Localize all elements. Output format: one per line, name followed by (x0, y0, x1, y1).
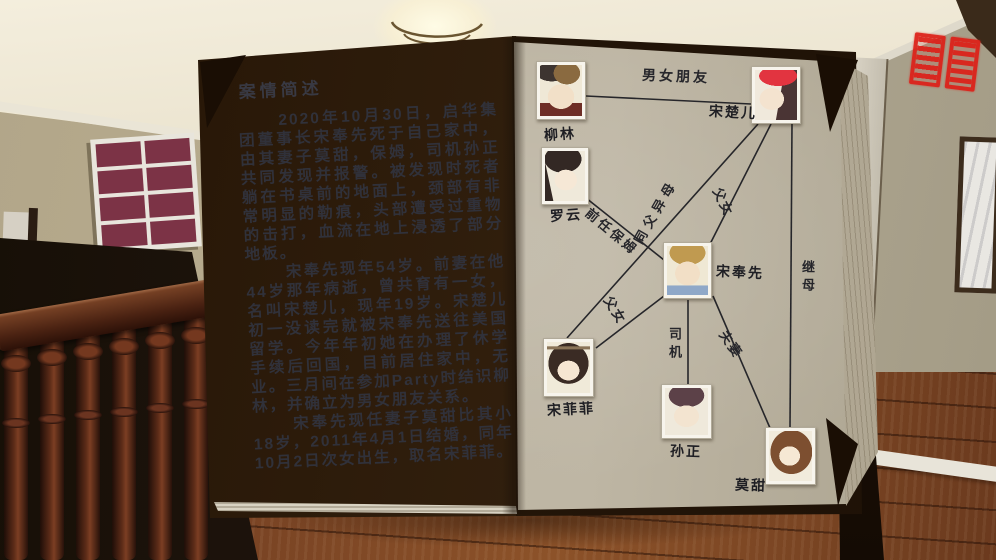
portrait-sunzheng[interactable] (661, 384, 712, 439)
case-summary: 案情简述 2020年10月30日，启华集团董事长宋奉先死于自己家中，由其妻子莫甜… (236, 65, 515, 473)
portrait-label-liulin: 柳林 (543, 123, 576, 145)
relation-label-boyfriend: 男女朋友 (642, 65, 711, 87)
portrait-motian[interactable] (765, 427, 816, 485)
songfengxian-photo (667, 246, 708, 295)
songfeifei-photo (547, 342, 590, 393)
portrait-luoyun[interactable] (541, 147, 589, 205)
sunzheng-photo (665, 388, 708, 435)
wall-window (90, 133, 202, 254)
portrait-songfeifei[interactable] (543, 338, 594, 397)
stair-baluster (112, 296, 136, 560)
portrait-label-sunzheng: 孙正 (670, 440, 703, 461)
case-paragraph: 宋奉先现年54岁。前妻在他44岁那年病逝，曾共育有一女，名叫宋楚儿，现年19岁。… (245, 252, 512, 417)
stair-baluster (76, 302, 100, 560)
stair-baluster (4, 316, 28, 560)
red-seal-icon[interactable] (908, 24, 981, 96)
stair-baluster (40, 309, 64, 560)
portrait-label-songchuer: 宋楚儿 (709, 101, 758, 123)
motian-photo (769, 431, 812, 481)
window-panes (95, 138, 196, 248)
portrait-label-songfengxian: 宋奉先 (716, 261, 765, 283)
portrait-songchuer[interactable] (751, 66, 801, 124)
seal-glyph (909, 32, 946, 87)
portrait-liulin[interactable] (536, 61, 586, 120)
seal-glyph (944, 36, 981, 91)
songchuer-photo (755, 70, 797, 120)
portrait-songfengxian[interactable] (663, 242, 712, 299)
case-paragraph: 2020年10月30日，启华集团董事长宋奉先死于自己家中，由其妻子莫甜，保姆，司… (238, 100, 505, 265)
liulin-photo (540, 65, 582, 116)
portrait-label-luoyun: 罗云 (549, 204, 582, 226)
wall-picture-frame (954, 136, 996, 293)
luoyun-photo (545, 151, 585, 201)
relation-label-driver: 司机 (665, 327, 684, 363)
portrait-label-songfeifei: 宋菲菲 (547, 398, 596, 420)
portrait-label-motian: 莫甜 (735, 474, 768, 495)
relation-label-stepmother: 继母 (798, 260, 817, 296)
